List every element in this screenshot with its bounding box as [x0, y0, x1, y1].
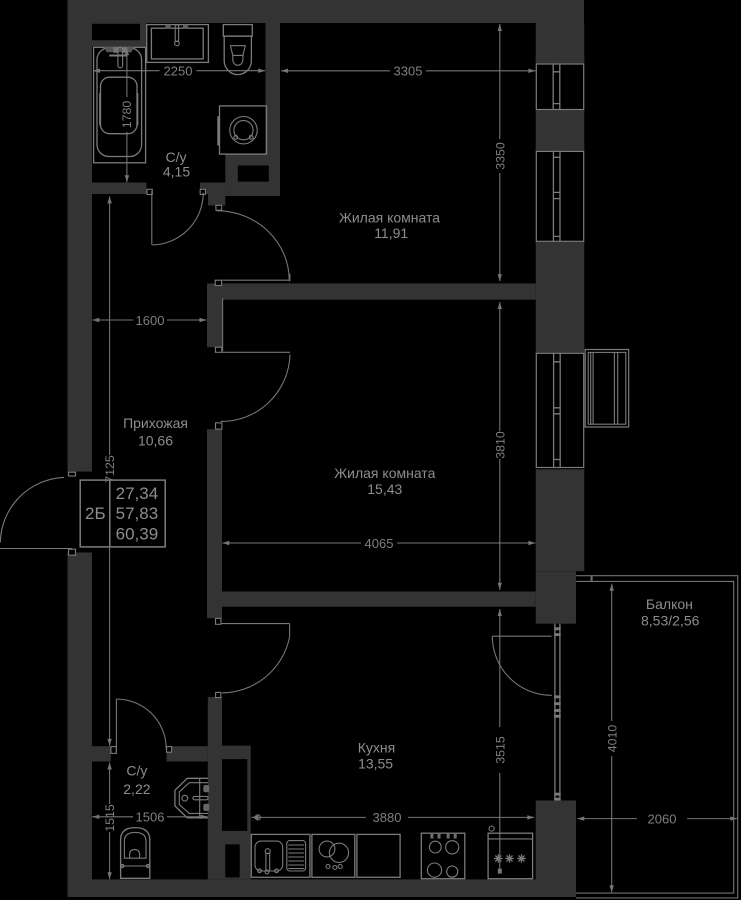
svg-text:60,39: 60,39	[116, 525, 159, 544]
svg-text:7125: 7125	[103, 455, 117, 483]
svg-text:3810: 3810	[494, 431, 508, 459]
svg-text:15,43: 15,43	[367, 481, 402, 497]
svg-text:Жилая комната: Жилая комната	[334, 465, 435, 481]
svg-text:2Б: 2Б	[85, 504, 106, 523]
svg-text:Прихожая: Прихожая	[123, 415, 188, 431]
svg-text:3350: 3350	[494, 142, 508, 170]
svg-text:57,83: 57,83	[116, 504, 159, 523]
svg-text:2060: 2060	[648, 811, 677, 826]
svg-text:3305: 3305	[394, 64, 423, 79]
svg-text:1600: 1600	[136, 313, 165, 328]
svg-text:8,53/2,56: 8,53/2,56	[641, 613, 700, 629]
svg-text:4065: 4065	[365, 536, 394, 551]
svg-text:11,91: 11,91	[374, 225, 408, 241]
svg-text:4,15: 4,15	[163, 163, 190, 179]
svg-text:1780: 1780	[120, 101, 134, 129]
svg-text:4010: 4010	[606, 725, 620, 753]
svg-text:3515: 3515	[494, 736, 508, 764]
svg-text:13,55: 13,55	[358, 756, 393, 772]
svg-text:С/у: С/у	[126, 763, 147, 779]
svg-text:10,66: 10,66	[138, 432, 173, 448]
svg-text:2250: 2250	[164, 64, 193, 79]
svg-text:Балкон: Балкон	[646, 596, 693, 612]
svg-text:Жилая комната: Жилая комната	[339, 209, 440, 225]
svg-text:1506: 1506	[136, 810, 165, 825]
svg-text:Кухня: Кухня	[358, 739, 395, 755]
svg-text:3880: 3880	[373, 810, 402, 825]
svg-text:2,22: 2,22	[123, 781, 150, 797]
svg-text:1515: 1515	[103, 804, 117, 832]
svg-text:27,34: 27,34	[116, 484, 159, 503]
